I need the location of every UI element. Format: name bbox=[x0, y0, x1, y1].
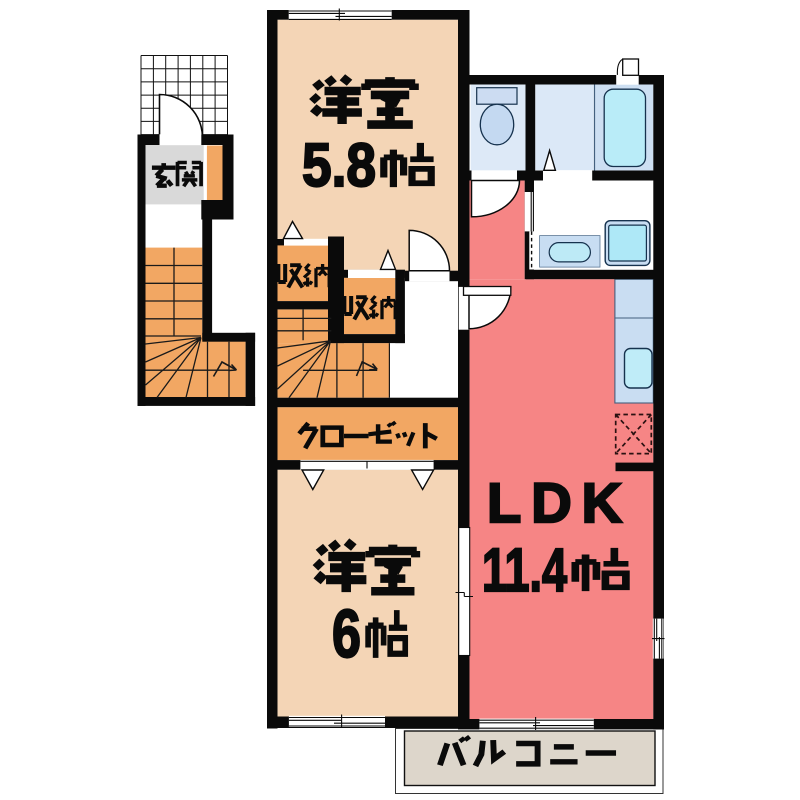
svg-text:11.4: 11.4 bbox=[482, 536, 567, 604]
svg-text:6: 6 bbox=[332, 596, 361, 672]
svg-text:5.8: 5.8 bbox=[302, 131, 376, 199]
svg-text:LDK: LDK bbox=[487, 471, 632, 534]
